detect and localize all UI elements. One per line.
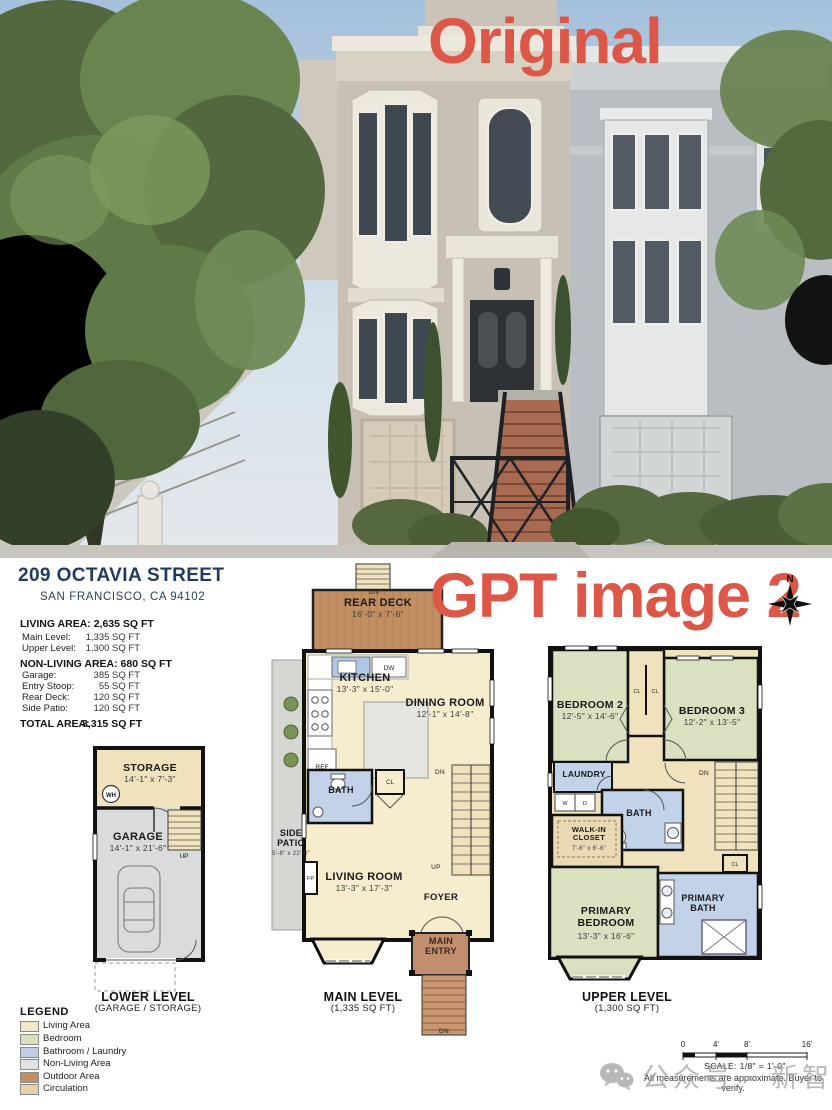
stove (308, 690, 332, 736)
lower-level-subcaption: (GARAGE / STORAGE) (78, 1004, 218, 1015)
legend-label: Non-Living Area (43, 1058, 111, 1069)
foyer-label: FOYER (411, 893, 471, 904)
legend-label: Bathroom / Laundry (43, 1046, 126, 1057)
watermark: 公众号 · 新智元 (598, 1056, 832, 1095)
legend-swatch-circulation (20, 1084, 39, 1095)
closet-label: CL (651, 689, 658, 695)
primary-bedroom-label: PRIMARY BEDROOM (560, 906, 652, 930)
stair-closet: CL (723, 855, 747, 872)
total-label: TOTAL AREA: (20, 718, 90, 730)
gpt-image-2-label: GPT image 2 (430, 560, 801, 632)
closet-label: CL (731, 862, 738, 868)
shower (702, 920, 746, 954)
sidewalk (0, 545, 832, 558)
storage-label: STORAGE (100, 763, 200, 775)
legend-swatch-nonliving (20, 1059, 39, 1070)
main-level-plan: DW REF CL FP (268, 562, 548, 1052)
entry-dn-label: DN (434, 1028, 454, 1035)
walk-in-closet-label: WALK-IN CLOSET (557, 826, 621, 843)
garage-label: GARAGE (88, 831, 188, 843)
dining-room-dims: 12'-1" x 14'-8" (395, 710, 495, 720)
driveway-outline (95, 963, 175, 991)
living-area-heading: LIVING AREA: 2,635 SQ FT (20, 618, 154, 630)
legend-title: LEGEND (20, 1006, 69, 1018)
dishwasher-label: DW (384, 665, 396, 672)
upper-bath-label: BATH (614, 808, 664, 818)
wechat-icon (598, 1061, 634, 1091)
scale-tick: 4' (713, 1040, 719, 1049)
deck-stairs (356, 564, 390, 590)
row-label: Side Patio: (22, 703, 68, 714)
legend-swatch-living (20, 1021, 39, 1032)
total-value: 3,315 SQ FT (82, 718, 142, 730)
main-dn-label: DN (430, 769, 450, 776)
row-value: 120 SQ FT (64, 703, 140, 714)
row-label: Rear Deck: (22, 692, 70, 703)
laundry-label: LAUNDRY (552, 770, 616, 780)
watermark-text: 公众号 · 新智元 (642, 1056, 832, 1095)
water-heater-label: WH (106, 793, 116, 799)
washer-label: W (562, 801, 568, 807)
driveway (430, 542, 590, 558)
closet-label: CL (633, 689, 640, 695)
compass-rose: N (765, 570, 815, 632)
walk-in-closet-dims: 7'-6" x 6'-6" (557, 846, 621, 853)
closet-label: CL (386, 780, 394, 786)
scale-tick: 0 (681, 1040, 685, 1049)
nonliving-area-heading: NON-LIVING AREA: 680 SQ FT (20, 658, 172, 670)
legend-label: Outdoor Area (43, 1071, 100, 1082)
main-entry-label: MAIN ENTRY (414, 936, 468, 956)
scale-tick: 16' (802, 1040, 812, 1049)
main-up-label: UP (426, 864, 446, 871)
bedroom3-dims: 12'-2" x 13'-5" (662, 718, 762, 728)
neighbor-house-right (552, 30, 832, 555)
page-title: 209 OCTAVIA STREET (18, 565, 224, 587)
composite-image: 709 (0, 0, 832, 1110)
rear-deck-label: REAR DECK (318, 597, 438, 609)
legend-swatch-outdoor (20, 1072, 39, 1083)
row-value: 1,335 SQ FT (64, 632, 140, 643)
row-value: 55 SQ FT (64, 681, 140, 692)
primary-bedroom-dims: 13'-3" x 16'-6" (560, 932, 652, 942)
legend-label: Circulation (43, 1083, 88, 1094)
legend-label: Bedroom (43, 1033, 82, 1044)
main-bay-window (312, 939, 384, 963)
upper-bay-window (558, 957, 641, 979)
main-bath (308, 770, 372, 823)
upper-dn-label: DN (694, 770, 714, 777)
bedroom2-label: BEDROOM 2 (540, 700, 640, 712)
storage-dims: 14'-1" x 7'-3" (100, 775, 200, 785)
side-patio-dims: 5'-6" x 22'-0" (268, 851, 314, 858)
kitchen-label: KITCHEN (315, 672, 415, 684)
row-value: 1,300 SQ FT (64, 643, 140, 654)
scale-tick: 8' (744, 1040, 750, 1049)
upper-stairs (715, 762, 758, 850)
row-label: Garage: (22, 670, 56, 681)
patio-plants (284, 697, 298, 767)
legend-swatch-bath (20, 1047, 39, 1058)
side-patio-label: SIDE PATIO (271, 828, 311, 848)
row-value: 385 SQ FT (64, 670, 140, 681)
original-label: Original (428, 4, 662, 78)
main-stairs (452, 765, 490, 875)
legend-swatch-bedroom (20, 1034, 39, 1045)
deck-dn-label: DN (362, 589, 386, 596)
upper-level-subcaption: (1,300 SQ FT) (557, 1004, 697, 1015)
primary-bath-label: PRIMARY BATH (673, 893, 733, 913)
main-level-subcaption: (1,335 SQ FT) (293, 1004, 433, 1015)
stairs-up-label: UP (179, 853, 188, 860)
main-bath-label: BATH (315, 785, 367, 795)
page-subtitle: SAN FRANCISCO, CA 94102 (40, 591, 205, 603)
living-room-label: LIVING ROOM (314, 871, 414, 883)
living-room-dims: 13'-3" x 17'-3" (314, 884, 414, 894)
rear-deck-dims: 16'-0" x 7'-6" (318, 610, 438, 620)
bedroom3-label: BEDROOM 3 (662, 706, 762, 718)
kitchen-dims: 13'-3" x 15'-0" (315, 685, 415, 695)
bedroom2-dims: 12'-5" x 14'-6" (540, 712, 640, 722)
legend-label: Living Area (43, 1020, 90, 1031)
upper-level-caption: UPPER LEVEL (557, 990, 697, 1004)
primary-bath-area (658, 873, 758, 957)
row-value: 120 SQ FT (64, 692, 140, 703)
garage-dims: 14'-1" x 21'-6" (88, 844, 188, 854)
compass-n-label: N (786, 574, 793, 585)
lower-level-caption: LOWER LEVEL (78, 990, 218, 1004)
house-photo: 709 (0, 0, 832, 558)
dining-room-label: DINING ROOM (395, 697, 495, 709)
main-level-caption: MAIN LEVEL (293, 990, 433, 1004)
dryer-label: D (583, 801, 587, 807)
